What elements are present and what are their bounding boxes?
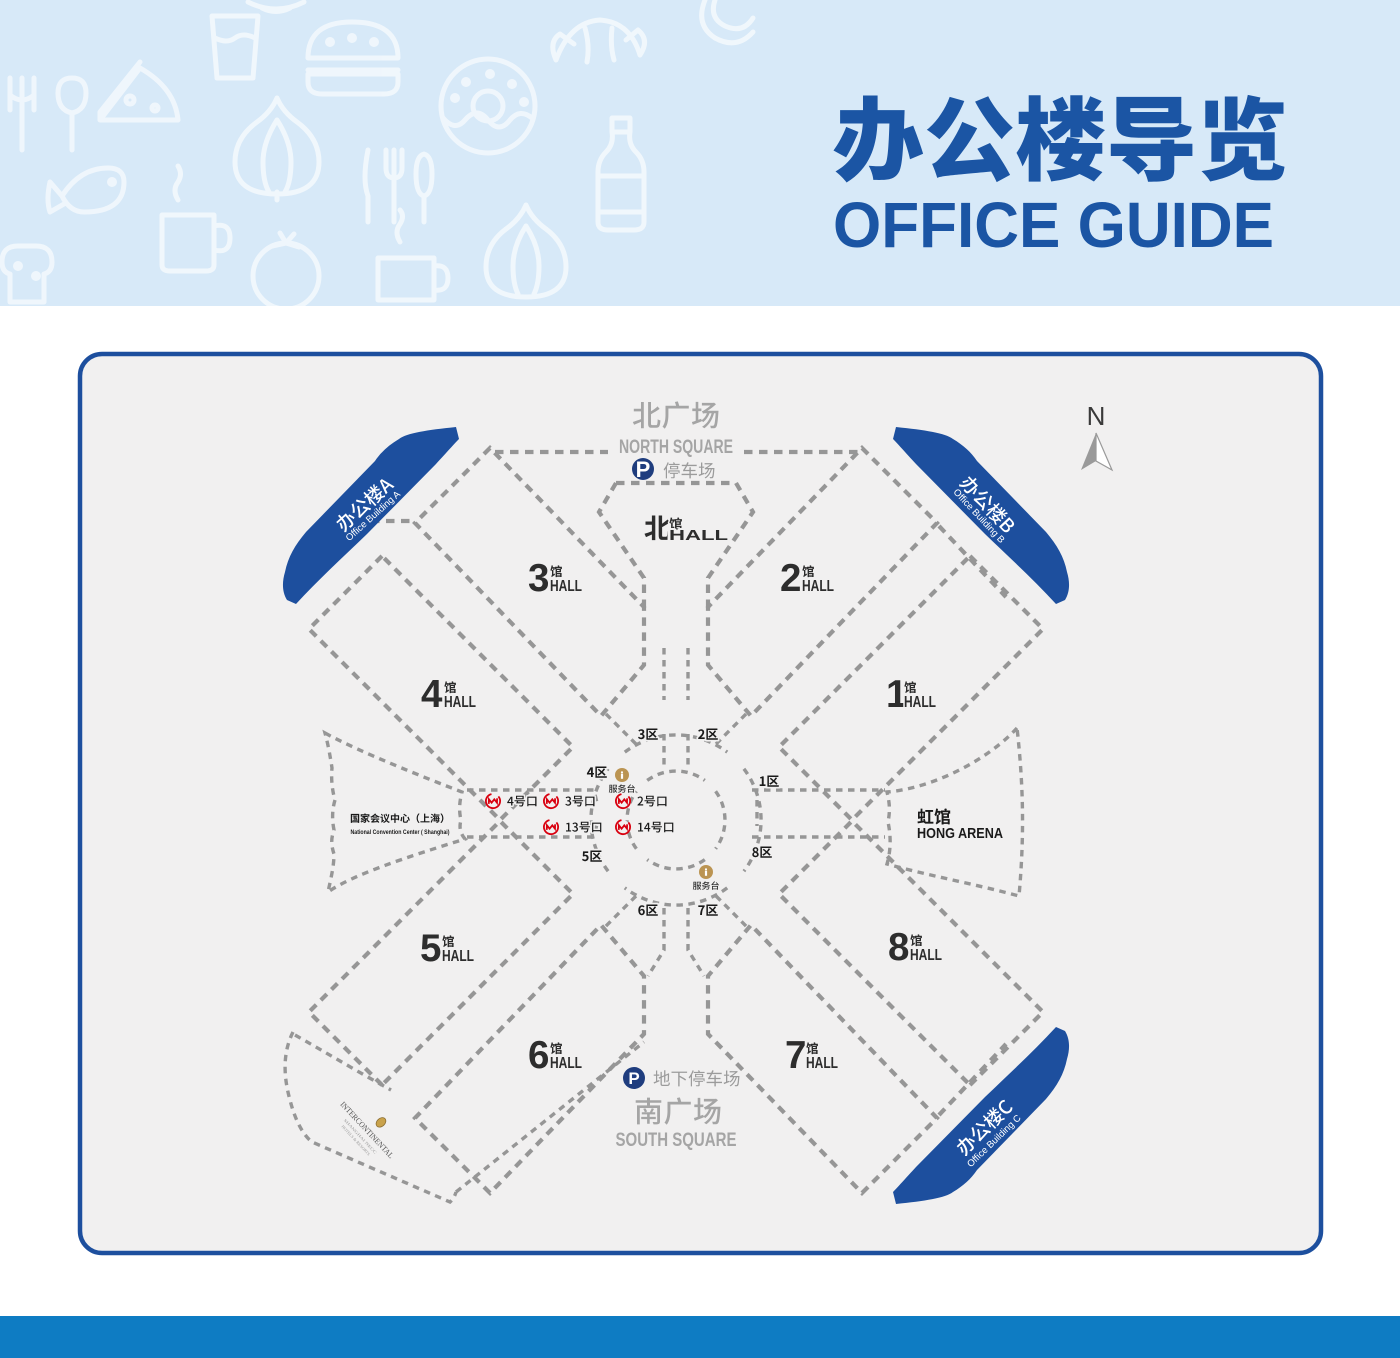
svg-text:HALL: HALL [550,1055,582,1072]
svg-text:P: P [636,457,651,482]
svg-text:N: N [1087,401,1106,431]
svg-text:HALL: HALL [802,578,834,595]
svg-text:2: 2 [780,557,801,600]
svg-text:4: 4 [421,673,443,716]
svg-text:HALL: HALL [669,527,728,544]
svg-text:P: P [628,1069,639,1088]
svg-text:HALL: HALL [444,694,476,711]
svg-text:7: 7 [785,1034,806,1077]
svg-text:HALL: HALL [910,947,942,964]
svg-text:HALL: HALL [442,948,474,965]
svg-text:National Convention Center ( S: National Convention Center ( Shanghai) [351,829,450,836]
svg-text:8: 8 [888,926,909,969]
svg-text:OFFICE GUIDE: OFFICE GUIDE [833,189,1274,261]
svg-text:3: 3 [528,557,549,600]
svg-text:SOUTH SQUARE: SOUTH SQUARE [616,1129,737,1151]
svg-text:NORTH SQUARE: NORTH SQUARE [619,436,733,458]
svg-text:HALL: HALL [550,578,582,595]
svg-text:5: 5 [420,927,441,970]
svg-text:HALL: HALL [904,694,936,711]
svg-text:HONG ARENA: HONG ARENA [917,825,1003,842]
svg-text:HALL: HALL [806,1055,838,1072]
svg-text:6: 6 [528,1034,549,1077]
